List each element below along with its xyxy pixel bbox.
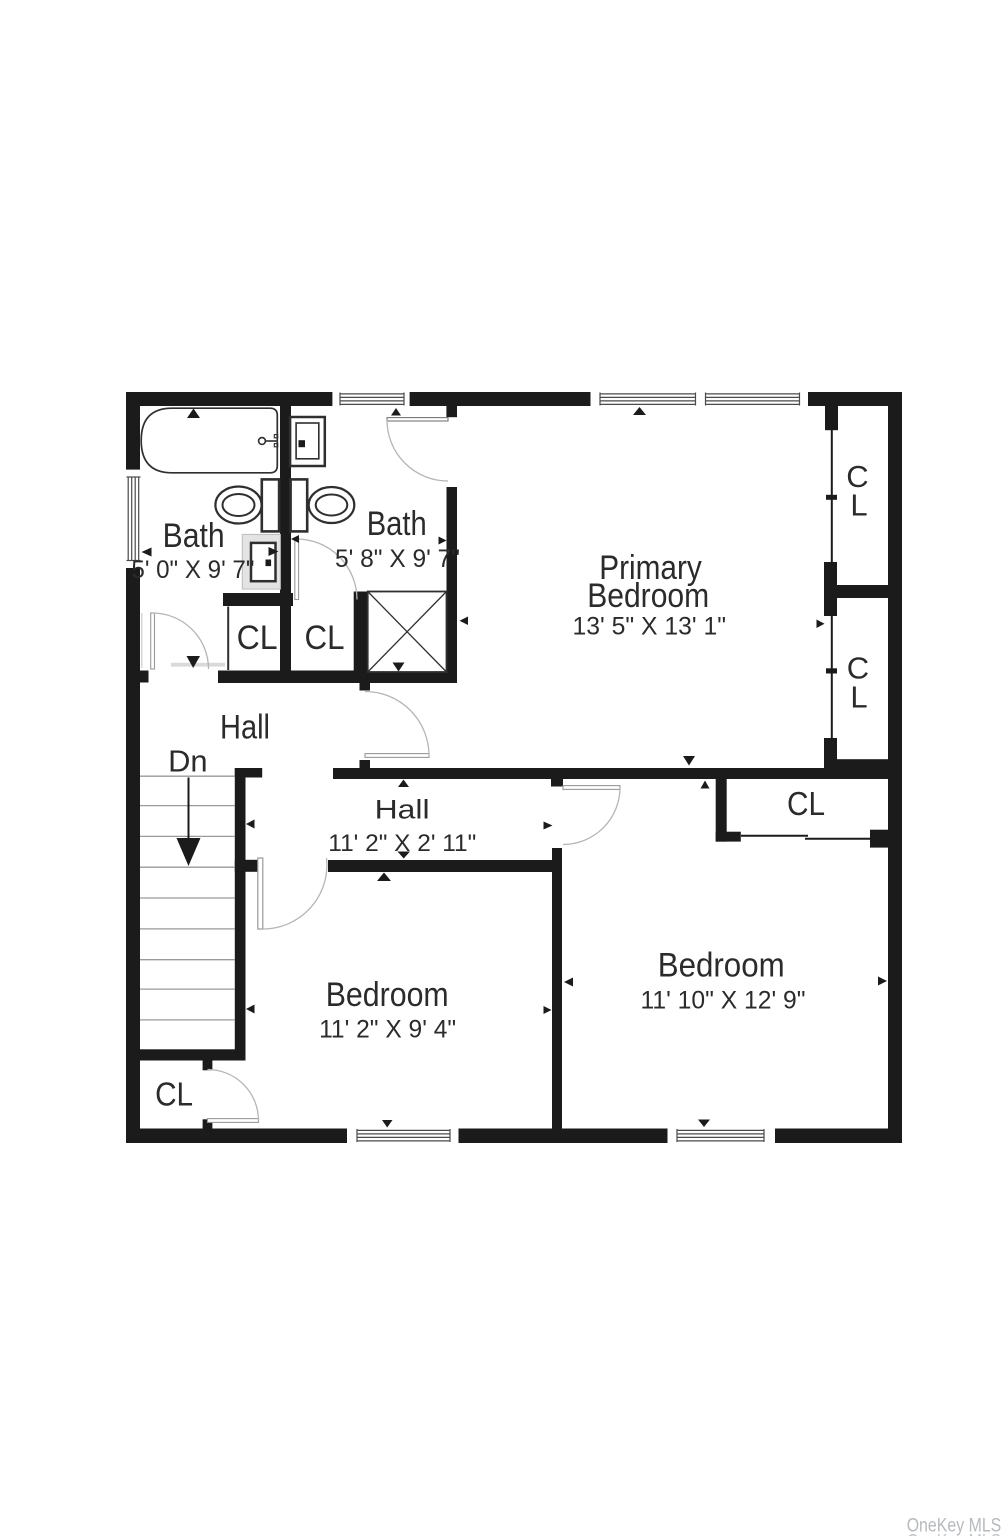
svg-text:Bath: Bath [163, 517, 225, 555]
svg-text:Bedroom: Bedroom [587, 577, 709, 615]
svg-text:CL: CL [237, 619, 278, 657]
svg-text:Bath: Bath [367, 505, 427, 543]
svg-text:Bedroom: Bedroom [658, 947, 785, 985]
svg-text:L: L [850, 680, 867, 715]
svg-text:CL: CL [155, 1075, 193, 1112]
svg-text:11' 10" X 12' 9": 11' 10" X 12' 9" [641, 986, 806, 1014]
svg-text:11' 2" X 9' 4": 11' 2" X 9' 4" [319, 1015, 456, 1043]
svg-text:5' 0" X 9' 7": 5' 0" X 9' 7" [131, 556, 254, 584]
svg-text:CL: CL [305, 619, 345, 657]
svg-text:Hall: Hall [375, 795, 430, 825]
svg-text:OneKey MLS: OneKey MLS [907, 1531, 1002, 1536]
svg-text:11' 2" X 2' 11": 11' 2" X 2' 11" [328, 830, 476, 857]
svg-text:13' 5" X 13' 1": 13' 5" X 13' 1" [573, 613, 727, 641]
svg-text:Bedroom: Bedroom [326, 976, 449, 1014]
svg-text:L: L [850, 488, 867, 523]
svg-text:Hall: Hall [220, 709, 270, 747]
svg-text:CL: CL [787, 785, 825, 822]
svg-text:5' 8" X 9' 7": 5' 8" X 9' 7" [335, 545, 460, 573]
svg-text:Dn: Dn [168, 744, 208, 779]
